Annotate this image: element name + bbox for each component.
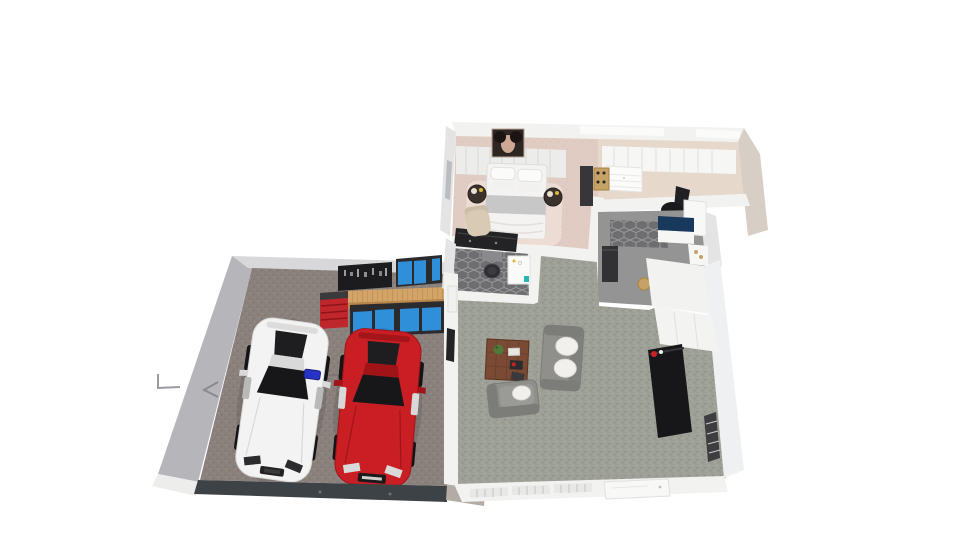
drawer-knob bbox=[623, 177, 625, 179]
counter-navy-top bbox=[658, 216, 694, 232]
south-window-frame bbox=[554, 483, 592, 493]
hanging-tool bbox=[379, 271, 382, 276]
closet-dresser[interactable] bbox=[606, 166, 642, 192]
dresser-knob bbox=[495, 242, 497, 244]
shoe-rack-frame bbox=[594, 168, 609, 190]
teal-trash-bin bbox=[524, 276, 529, 282]
shoe-rack[interactable] bbox=[594, 168, 609, 190]
nightstand-left[interactable] bbox=[468, 185, 486, 203]
flower-decor bbox=[555, 191, 559, 195]
counter-item bbox=[699, 255, 703, 259]
hanging-tool bbox=[357, 269, 359, 277]
bed-pillow-small bbox=[492, 181, 514, 190]
cabinet-door-blue bbox=[432, 258, 440, 281]
bed-pillow bbox=[518, 169, 542, 182]
shoe bbox=[597, 181, 600, 184]
base-cabinet-door bbox=[400, 308, 419, 332]
entry-stool[interactable] bbox=[638, 278, 650, 290]
storage-tower[interactable] bbox=[580, 166, 593, 206]
base-cabinet-door bbox=[422, 307, 441, 331]
shoe bbox=[597, 172, 600, 175]
table-lamp bbox=[547, 191, 553, 197]
door-knob bbox=[659, 486, 662, 489]
nightstand-top bbox=[544, 188, 562, 206]
toilet-lid bbox=[488, 267, 497, 275]
floorplan-render bbox=[0, 0, 960, 540]
book bbox=[508, 348, 519, 355]
tool-pegboard[interactable] bbox=[338, 262, 392, 291]
coffee-table[interactable] bbox=[485, 339, 529, 382]
hanging-tool bbox=[364, 272, 367, 277]
garage-door-handle bbox=[389, 493, 392, 496]
cabinet-door-blue bbox=[398, 261, 412, 285]
shoe bbox=[603, 181, 606, 184]
flower-decor bbox=[479, 188, 483, 192]
table-lamp bbox=[471, 188, 477, 194]
art-hair bbox=[494, 131, 506, 143]
toilet-tank bbox=[482, 250, 502, 262]
nightstand-top bbox=[468, 185, 486, 203]
hanging-tool bbox=[385, 268, 387, 276]
vanity-decor bbox=[513, 260, 516, 263]
hanging-tool bbox=[372, 268, 374, 275]
garage-wall-cabinets[interactable] bbox=[396, 255, 442, 287]
creeper-board bbox=[304, 369, 321, 380]
bed-pillow-small bbox=[518, 183, 540, 192]
red-decor bbox=[651, 351, 657, 357]
hanging-tool bbox=[344, 270, 346, 276]
bed-throw-blanket bbox=[486, 195, 547, 215]
mechanic-creeper[interactable] bbox=[304, 369, 321, 380]
car-engine-cover bbox=[366, 341, 400, 366]
sofa[interactable] bbox=[540, 325, 584, 392]
chair-seat bbox=[464, 208, 491, 237]
hanging-tool bbox=[350, 272, 353, 276]
garage-access-door[interactable] bbox=[448, 286, 457, 312]
side-counter[interactable] bbox=[688, 244, 708, 266]
south-window bbox=[512, 485, 550, 495]
side-counter-base bbox=[688, 244, 708, 266]
water-heater-appliance[interactable] bbox=[602, 246, 618, 282]
shoe bbox=[603, 172, 606, 175]
garage bbox=[152, 255, 448, 502]
car-engine-cover bbox=[272, 330, 307, 358]
wall-pipe bbox=[158, 374, 180, 388]
lounge-chair[interactable] bbox=[486, 379, 539, 418]
south-window bbox=[554, 483, 592, 493]
cabinet-door-blue bbox=[414, 260, 426, 284]
serving-tray bbox=[510, 360, 523, 370]
white-decor bbox=[659, 350, 663, 354]
bedroom-armchair[interactable] bbox=[464, 204, 492, 237]
art-hair bbox=[510, 131, 522, 143]
entry-living-wedge-wall bbox=[646, 258, 712, 314]
car-mirror bbox=[239, 369, 248, 377]
car-mirror bbox=[334, 379, 343, 387]
vanity-sink-item bbox=[519, 262, 522, 265]
front-door-panel bbox=[604, 479, 670, 499]
wall-art-portrait[interactable] bbox=[492, 129, 524, 157]
wall-mounted-board[interactable] bbox=[446, 328, 455, 362]
counter-base bbox=[658, 230, 694, 244]
bed[interactable] bbox=[485, 163, 548, 239]
bathroom-vanity[interactable] bbox=[508, 256, 530, 284]
counter-item bbox=[694, 250, 698, 254]
kitchen-counter[interactable] bbox=[658, 216, 694, 244]
tool-cart[interactable] bbox=[320, 291, 348, 329]
front-door[interactable] bbox=[604, 479, 670, 499]
nightstand-right[interactable] bbox=[544, 188, 562, 206]
dresser-knob bbox=[469, 240, 471, 242]
garage-door-handle bbox=[319, 491, 322, 494]
south-window-frame bbox=[512, 485, 550, 495]
suite-east-wall bbox=[738, 128, 768, 236]
bed-pillow bbox=[491, 167, 515, 180]
